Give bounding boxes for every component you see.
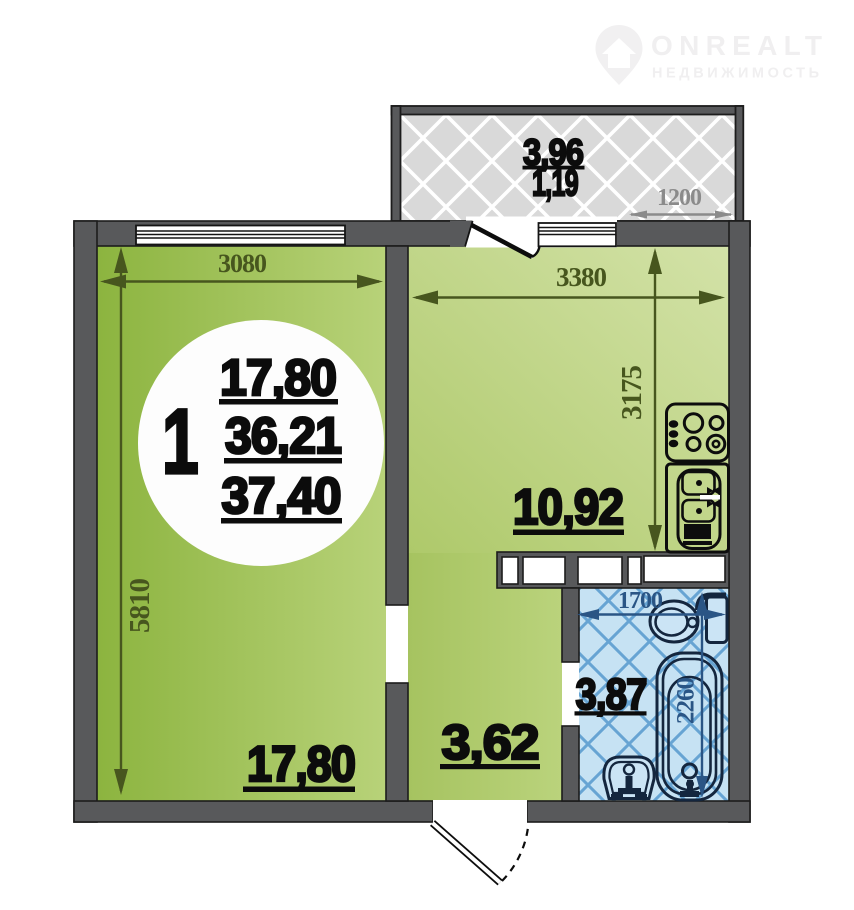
svg-text:5810: 5810 xyxy=(124,579,156,634)
svg-text:3380: 3380 xyxy=(556,262,607,292)
svg-text:17,80: 17,80 xyxy=(220,349,336,406)
svg-text:3,62: 3,62 xyxy=(442,716,539,770)
svg-text:10,92: 10,92 xyxy=(513,479,623,535)
svg-text:36,21: 36,21 xyxy=(225,407,341,464)
svg-text:1200: 1200 xyxy=(657,185,702,211)
svg-text:3080: 3080 xyxy=(218,249,267,278)
svg-text:2260: 2260 xyxy=(673,678,700,725)
svg-text:3175: 3175 xyxy=(616,366,648,421)
svg-text:1,19: 1,19 xyxy=(532,163,578,204)
svg-text:37,40: 37,40 xyxy=(222,467,341,524)
svg-text:17,80: 17,80 xyxy=(247,736,355,792)
svg-text:1700: 1700 xyxy=(618,588,663,614)
svg-text:НЕДВИЖИМОСТЬ: НЕДВИЖИМОСТЬ xyxy=(652,66,822,82)
svg-text:1: 1 xyxy=(162,391,198,493)
